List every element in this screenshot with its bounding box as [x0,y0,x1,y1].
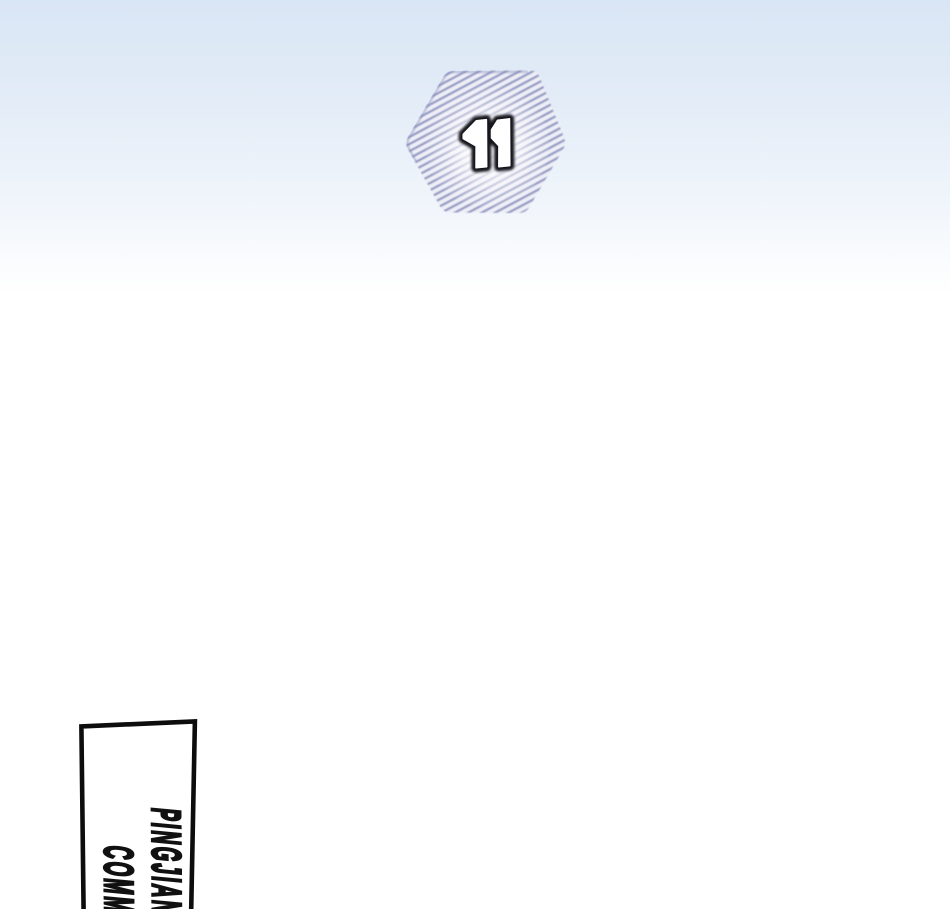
svg-text:PINGJIANG: PINGJIANG [143,806,190,909]
svg-text:COMMUNITY: COMMUNITY [96,844,143,909]
